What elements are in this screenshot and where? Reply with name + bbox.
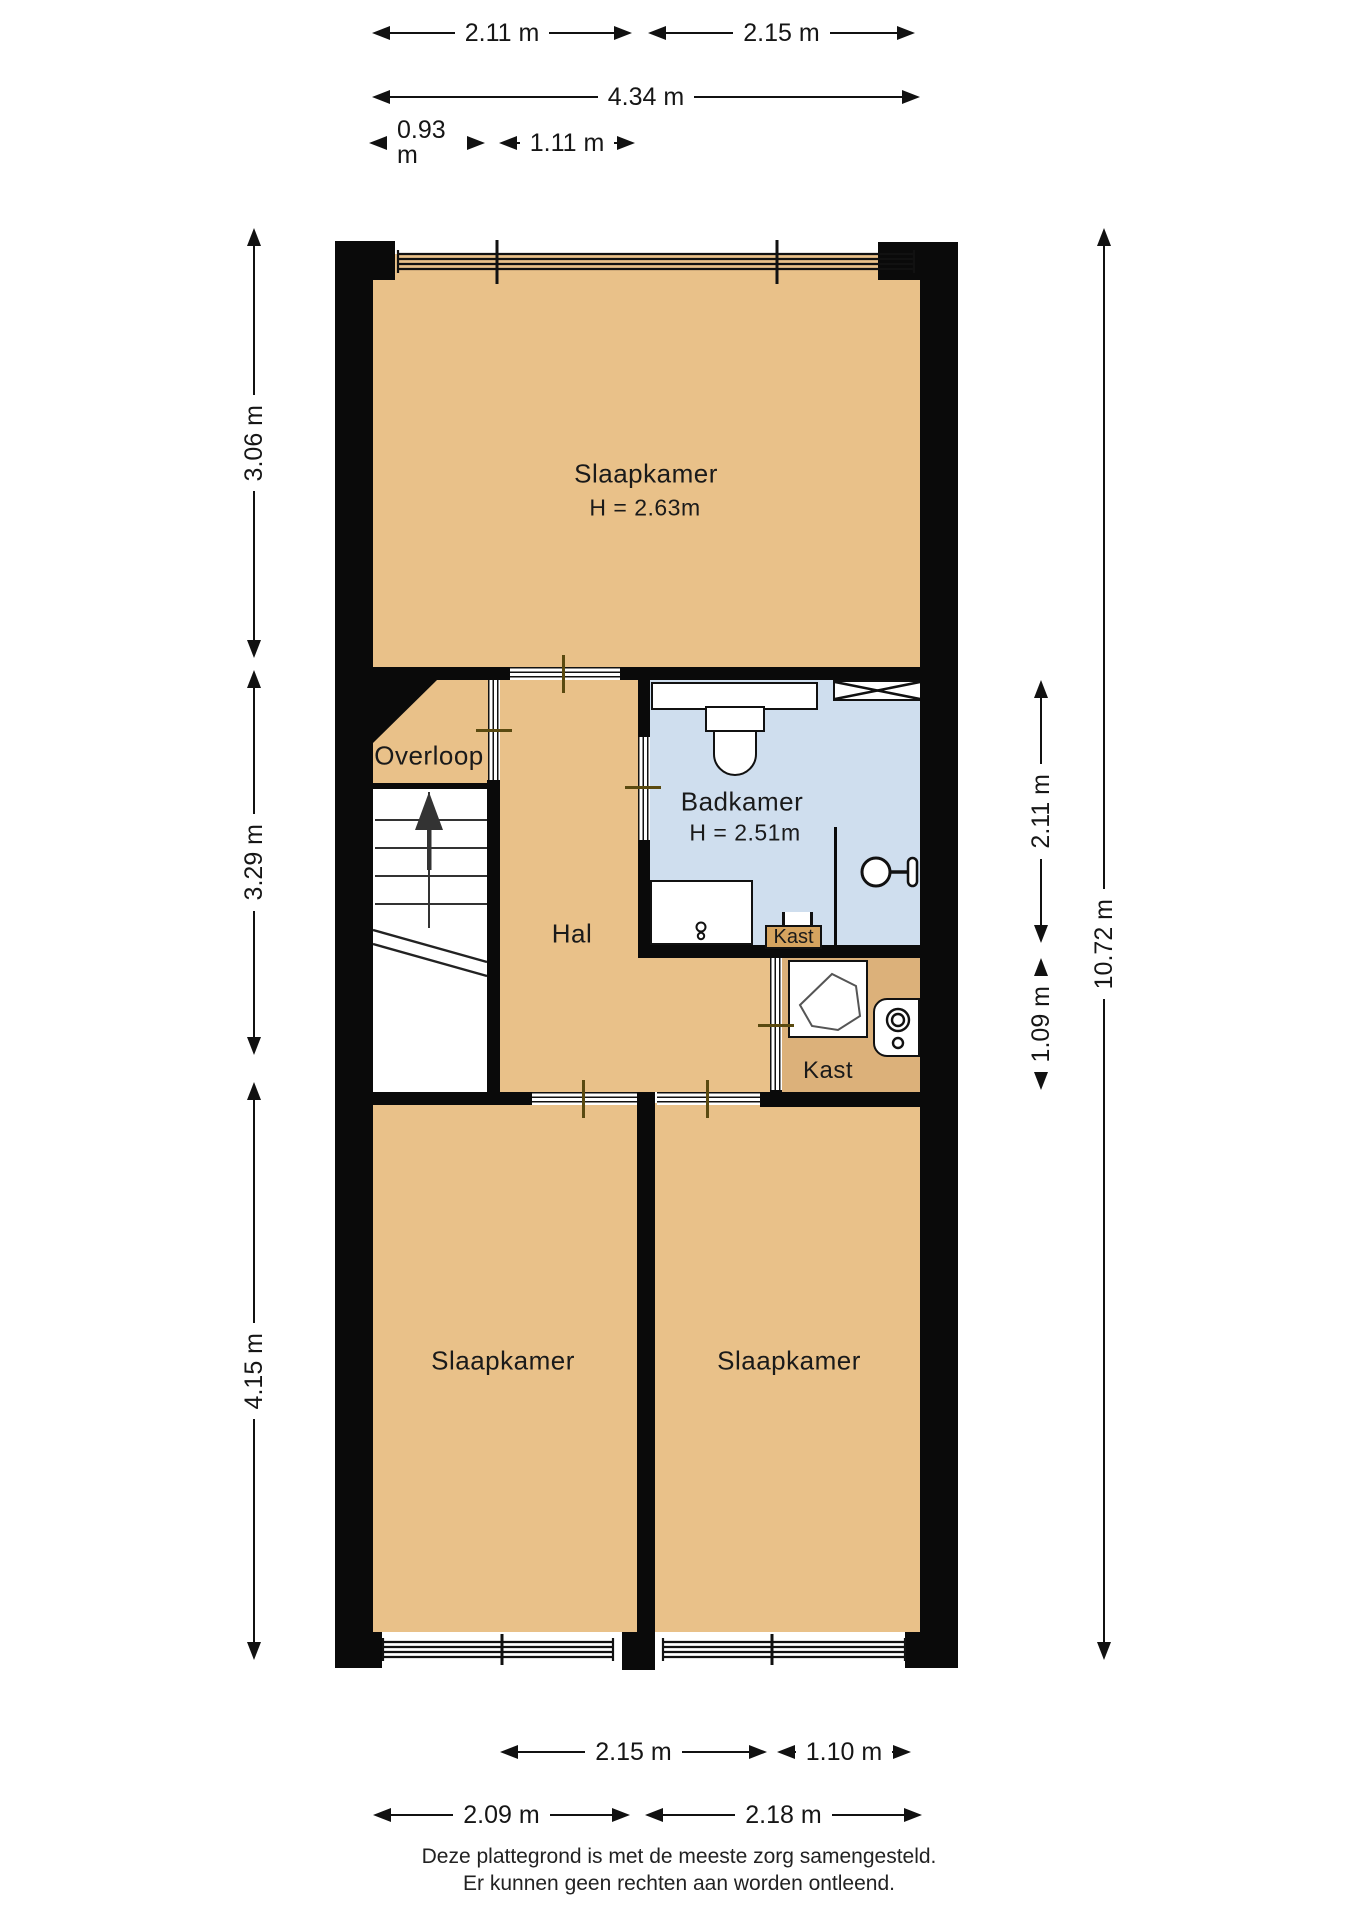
dim-top-1-11: 1.11 m	[499, 131, 635, 155]
arrow-left-icon	[500, 1745, 518, 1759]
arrow-down-icon	[247, 640, 261, 658]
label-slaapkamer-top: Slaapkamer	[574, 459, 718, 490]
dim-left-3-06: 3.06 m	[242, 228, 266, 658]
arrow-right-icon	[612, 1808, 630, 1822]
kast-badkamer-box: Kast	[765, 925, 822, 949]
arrow-up-icon	[247, 670, 261, 688]
arrow-right-icon	[749, 1745, 767, 1759]
shower-partition	[834, 827, 837, 947]
dim-right-10-72: 10.72 m	[1092, 228, 1116, 1660]
label-hal: Hal	[552, 919, 593, 950]
arrow-down-icon	[1034, 925, 1048, 943]
label-kast-achter: Kast	[803, 1057, 853, 1085]
arrow-up-icon	[1097, 228, 1111, 246]
room-hal-lower	[500, 947, 770, 1092]
dim-top-4-34: 4.34 m	[372, 85, 920, 109]
wall-overloop-block	[488, 668, 510, 680]
boiler-unit-icon	[788, 960, 868, 1038]
arrow-down-icon	[1034, 1072, 1048, 1090]
label-overloop: Overloop	[374, 741, 484, 772]
dim-bottom-1-10: 1.10 m	[777, 1740, 911, 1764]
dim-top-0-93: 0.93 m	[369, 131, 485, 155]
dim-bottom-2-09: 2.09 m	[373, 1803, 630, 1827]
dim-top-2-11: 2.11 m	[372, 21, 632, 45]
label-slaapkamer-left: Slaapkamer	[431, 1346, 575, 1377]
door-tick	[476, 729, 512, 732]
dim-right-2-11: 2.11 m	[1029, 680, 1053, 943]
ventilation-duct-icon	[833, 680, 922, 701]
disclaimer-line-1: Deze plattegrond is met de meeste zorg s…	[0, 1845, 1358, 1869]
wall-hal-bottom-b	[760, 1092, 922, 1107]
door-tick	[582, 1080, 585, 1118]
toilet-bowl	[713, 730, 757, 776]
wall-bottom-center	[622, 1632, 655, 1670]
wall-left	[335, 241, 373, 1668]
wall-badkamer-left-b	[638, 840, 650, 947]
floorplan-page: { "rooms": { "slaapkamer_boven": {"label…	[0, 0, 1358, 1920]
arrow-left-icon	[372, 26, 390, 40]
wall-bedroomtop-b	[620, 667, 922, 680]
room-overloop	[373, 680, 500, 790]
label-slaapkamer-right: Slaapkamer	[717, 1346, 861, 1377]
wall-overloop-hal	[487, 780, 500, 1103]
dim-bottom-2-15: 2.15 m	[500, 1740, 767, 1764]
arrow-left-icon	[648, 26, 666, 40]
washing-machine-icon	[873, 998, 920, 1057]
wall-bottom-right-pillar	[905, 1632, 958, 1668]
arrow-up-icon	[247, 1082, 261, 1100]
arrow-right-icon	[467, 136, 485, 150]
dim-bottom-2-18: 2.18 m	[645, 1803, 922, 1827]
arrow-left-icon	[369, 136, 387, 150]
wall-right	[920, 242, 958, 1668]
door-tick	[625, 786, 661, 789]
label-badkamer: Badkamer	[681, 787, 804, 818]
arrow-up-icon	[247, 228, 261, 246]
wall-top-left-pillar	[335, 241, 395, 280]
arrow-up-icon	[1034, 958, 1048, 976]
dim-left-4-15: 4.15 m	[242, 1082, 266, 1660]
arrow-down-icon	[247, 1037, 261, 1055]
kast-badkamer-label: Kast	[773, 926, 813, 949]
label-badkamer-height: H = 2.51m	[689, 820, 800, 847]
door-tick	[758, 1024, 794, 1027]
washbasin-icon	[650, 880, 753, 945]
arrow-left-icon	[499, 136, 517, 150]
arrow-left-icon	[372, 90, 390, 104]
dim-top-2-15: 2.15 m	[648, 21, 915, 45]
label-slaapkamer-top-height: H = 2.63m	[589, 495, 700, 522]
arrow-left-icon	[645, 1808, 663, 1822]
wall-bottom-left-pillar	[335, 1632, 382, 1668]
arrow-right-icon	[614, 26, 632, 40]
arrow-up-icon	[1034, 680, 1048, 698]
toilet-cistern	[705, 706, 765, 732]
arrow-right-icon	[902, 90, 920, 104]
window-bottom-left	[383, 1634, 613, 1665]
door-tick	[706, 1080, 709, 1118]
arrow-right-icon	[617, 136, 635, 150]
door-tick	[562, 655, 565, 693]
window-bottom-right	[663, 1634, 905, 1665]
arrow-right-icon	[897, 26, 915, 40]
wall-hal-bottom-a	[373, 1092, 532, 1105]
dim-left-3-29: 3.29 m	[242, 670, 266, 1055]
door-slaapkamer-top	[510, 667, 620, 680]
dim-right-1-09: 1.09 m	[1029, 958, 1053, 1097]
arrow-left-icon	[777, 1745, 795, 1759]
stairwell	[373, 783, 487, 1092]
wall-badkamer-left-a	[638, 680, 650, 737]
arrow-left-icon	[373, 1808, 391, 1822]
disclaimer-line-2: Er kunnen geen rechten aan worden ontlee…	[0, 1872, 1358, 1896]
arrow-right-icon	[893, 1745, 911, 1759]
arrow-down-icon	[247, 1642, 261, 1660]
arrow-right-icon	[904, 1808, 922, 1822]
kast-badkamer-opening	[782, 912, 813, 925]
arrow-down-icon	[1097, 1642, 1111, 1660]
wall-bedroom-divider	[637, 1103, 655, 1632]
